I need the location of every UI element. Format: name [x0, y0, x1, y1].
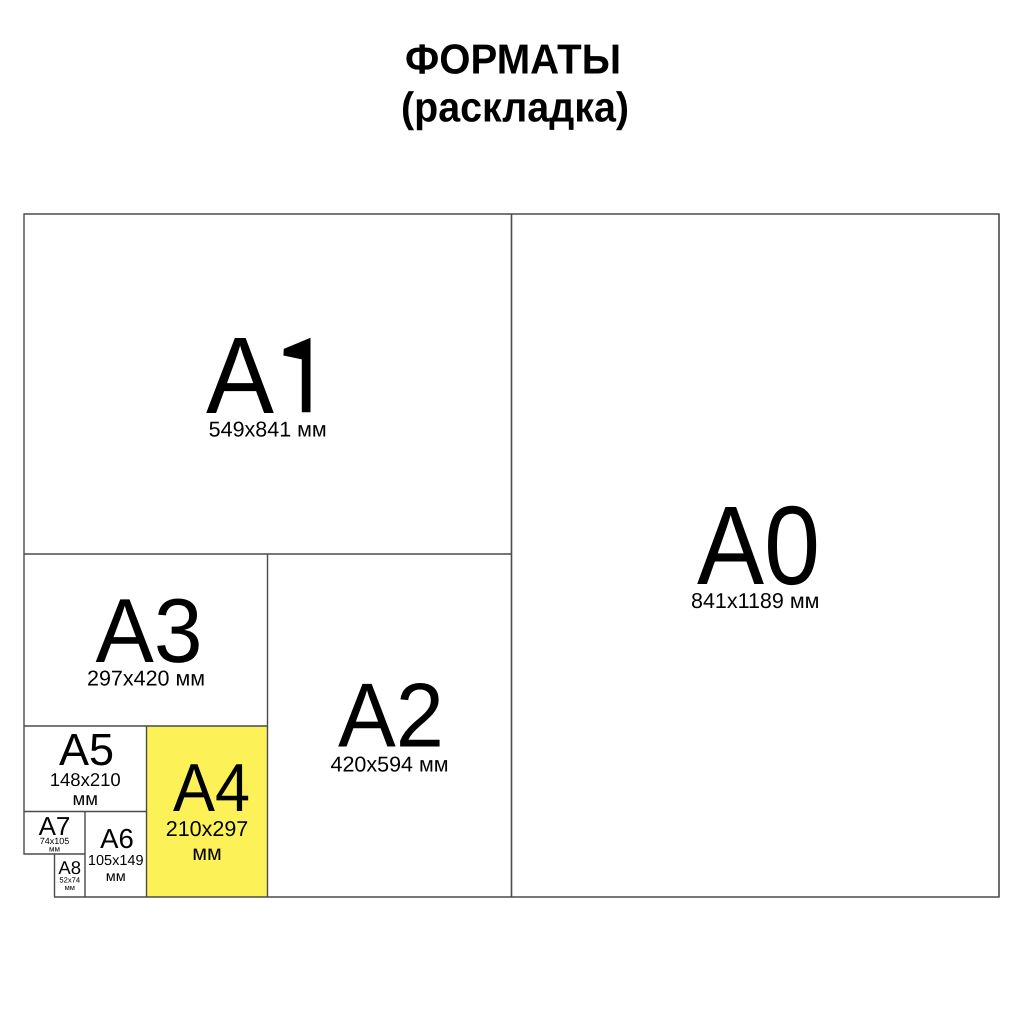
svg-text:420х594 мм: 420х594 мм: [330, 752, 448, 776]
svg-text:549х841 мм: 549х841 мм: [209, 418, 327, 442]
svg-text:105х149: 105х149: [88, 853, 144, 869]
svg-text:841х1189 мм: 841х1189 мм: [691, 589, 819, 613]
svg-text:(раскладка): (раскладка): [401, 84, 629, 131]
svg-text:мм: мм: [72, 788, 97, 809]
svg-text:ФОРМАТЫ: ФОРМАТЫ: [405, 36, 621, 83]
svg-text:мм: мм: [192, 841, 222, 865]
svg-text:мм: мм: [106, 869, 126, 885]
svg-text:210х297: 210х297: [166, 817, 249, 841]
svg-text:А5: А5: [59, 724, 114, 775]
svg-text:148х210: 148х210: [50, 769, 121, 790]
svg-text:А4: А4: [173, 750, 250, 826]
svg-text:А6: А6: [100, 823, 134, 854]
svg-text:мм: мм: [49, 845, 60, 854]
svg-text:мм: мм: [65, 883, 75, 892]
svg-text:297х420 мм: 297х420 мм: [87, 667, 205, 691]
